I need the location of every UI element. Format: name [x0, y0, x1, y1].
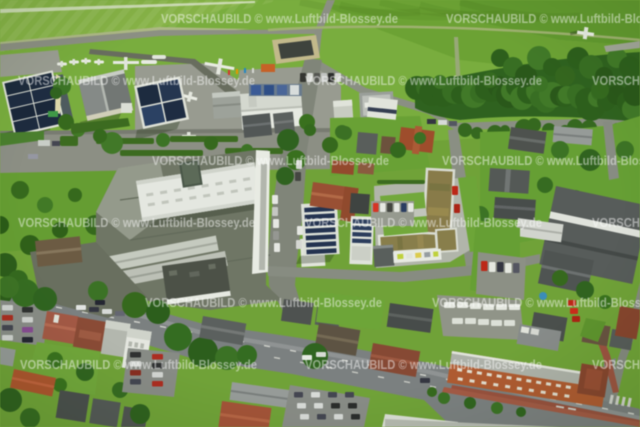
svg-text:VORSCHAUBILD © www.Luftbild-Bl: VORSCHAUBILD © www.Luftbild-Blossey.de: [592, 73, 640, 88]
svg-text:VORSCHAUBILD © www.Luftbild-Bl: VORSCHAUBILD © www.Luftbild-Blossey.de: [18, 215, 255, 230]
svg-text:VORSCHAUBILD © www.Luftbild-Bl: VORSCHAUBILD © www.Luftbild-Blossey.de: [18, 73, 255, 88]
svg-text:VORSCHAUBILD © www.Luftbild-Bl: VORSCHAUBILD © www.Luftbild-Blossey.de: [442, 153, 640, 168]
svg-text:VORSCHAUBILD © www.Luftbild-Bl: VORSCHAUBILD © www.Luftbild-Blossey.de: [432, 295, 640, 310]
svg-text:VORSCHAUBILD © www.Luftbild-Bl: VORSCHAUBILD © www.Luftbild-Blossey.de: [20, 357, 257, 372]
svg-text:VORSCHAUBILD © www.Luftbild-Bl: VORSCHAUBILD © www.Luftbild-Blossey.de: [592, 357, 640, 372]
svg-text:VORSCHAUBILD © www.Luftbild-Bl: VORSCHAUBILD © www.Luftbild-Blossey.de: [145, 295, 382, 310]
svg-text:VORSCHAUBILD © www.Luftbild-Bl: VORSCHAUBILD © www.Luftbild-Blossey.de: [305, 215, 542, 230]
svg-text:VORSCHAUBILD © www.Luftbild-Bl: VORSCHAUBILD © www.Luftbild-Blossey.de: [305, 73, 542, 88]
svg-text:VORSCHAUBILD © www.Luftbild-Bl: VORSCHAUBILD © www.Luftbild-Blossey.de: [592, 215, 640, 230]
svg-text:VORSCHAUBILD © www.Luftbild-Bl: VORSCHAUBILD © www.Luftbild-Blossey.de: [152, 153, 389, 168]
svg-text:VORSCHAUBILD © www.Luftbild-Bl: VORSCHAUBILD © www.Luftbild-Blossey.de: [446, 11, 640, 26]
svg-text:VORSCHAUBILD © www.Luftbild-Bl: VORSCHAUBILD © www.Luftbild-Blossey.de: [161, 11, 398, 26]
svg-text:VORSCHAUBILD © www.Luftbild-Bl: VORSCHAUBILD © www.Luftbild-Blossey.de: [305, 357, 542, 372]
